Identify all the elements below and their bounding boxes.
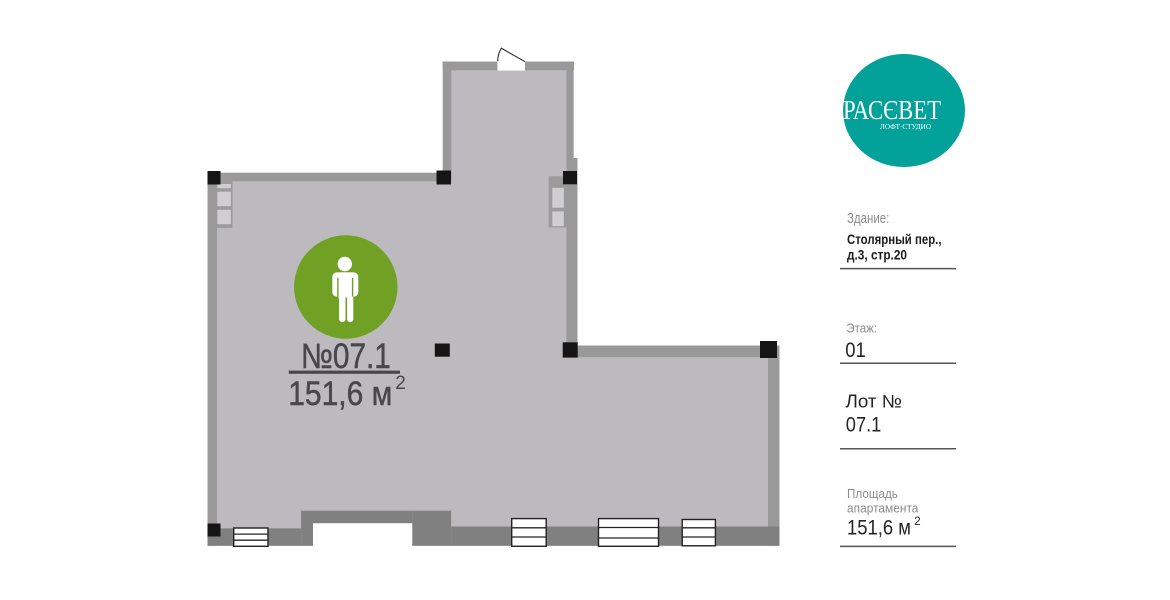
svg-text:07.1: 07.1 xyxy=(846,413,882,436)
svg-text:д.3, стр.20: д.3, стр.20 xyxy=(847,248,907,263)
svg-text:01: 01 xyxy=(845,339,866,362)
svg-text:151,6 м: 151,6 м xyxy=(847,517,911,540)
svg-text:Площадь: Площадь xyxy=(847,486,898,501)
svg-text:Столярный пер.,: Столярный пер., xyxy=(847,232,942,247)
svg-text:ЛОФТ·СТУДИО: ЛОФТ·СТУДИО xyxy=(880,123,931,131)
svg-text:2: 2 xyxy=(395,373,406,394)
svg-text:151,6 м: 151,6 м xyxy=(288,375,392,413)
svg-text:№07.1: №07.1 xyxy=(301,337,391,376)
svg-text:апартамента: апартамента xyxy=(847,501,919,516)
svg-text:РАСЄВЕТ: РАСЄВЕТ xyxy=(843,95,941,125)
svg-text:Этаж:: Этаж: xyxy=(846,321,877,336)
svg-text:Здание:: Здание: xyxy=(847,210,889,227)
svg-text:Лот №: Лот № xyxy=(846,392,903,412)
svg-text:2: 2 xyxy=(914,516,920,528)
